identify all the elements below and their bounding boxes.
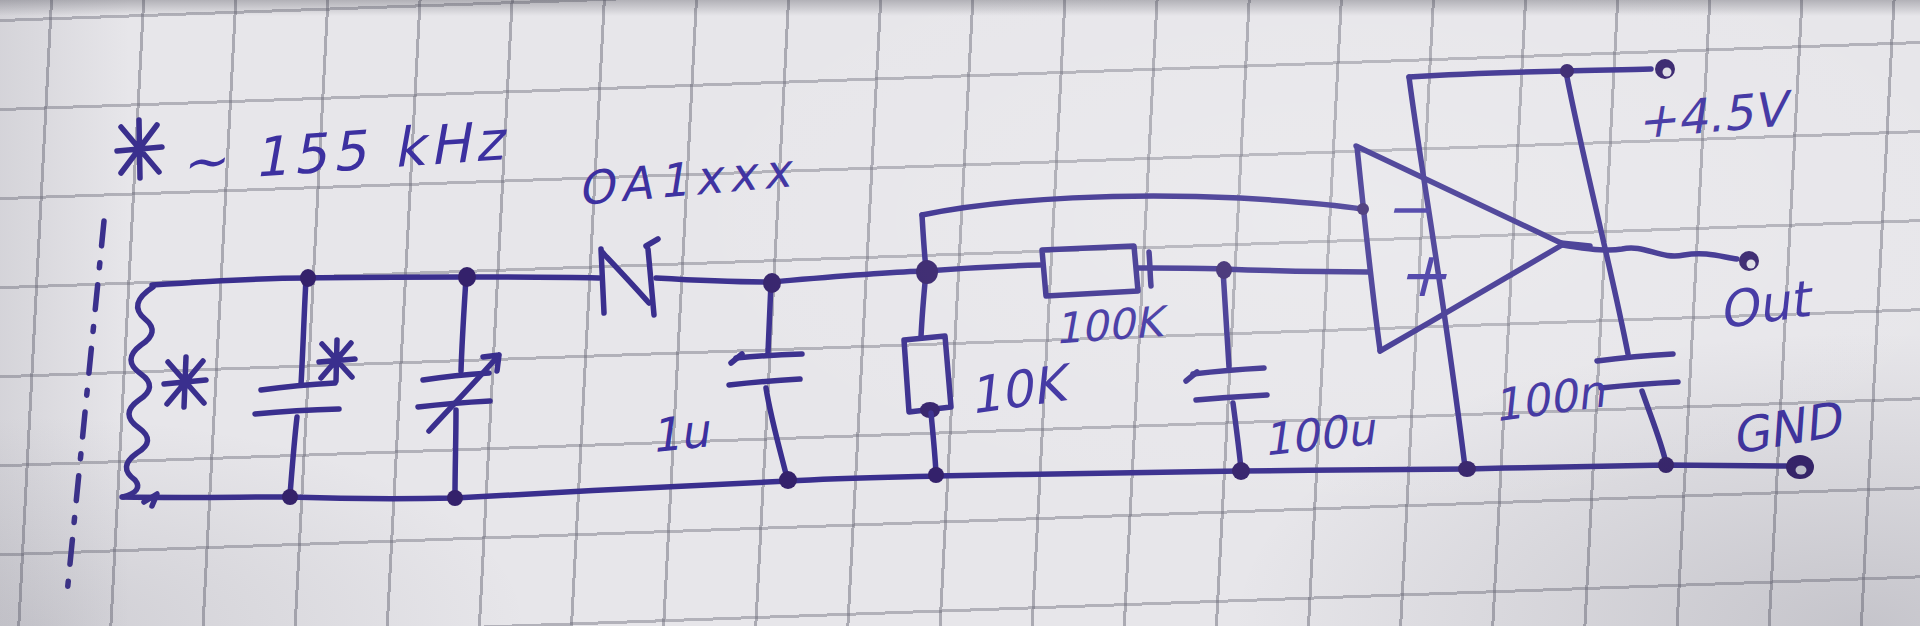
series-resistor-label: 100K xyxy=(1052,297,1170,354)
inverting-input-wire xyxy=(922,196,1362,269)
capacitor-note-asterisk xyxy=(319,340,355,381)
smoothing-capacitor xyxy=(1186,270,1267,469)
supply-rail-wire xyxy=(1409,69,1651,77)
supply-terminal xyxy=(1655,59,1675,79)
output-label: Out xyxy=(1714,269,1818,340)
inductor-coil xyxy=(123,287,153,497)
circuit-drawing: ~ 155 kHz OA1xxx 1u 10K 100K 100u 100n −… xyxy=(0,0,1920,626)
detector-filter-capacitor xyxy=(729,283,802,478)
filter-cap-label: 1u xyxy=(647,403,714,463)
load-resistor-label: 10K xyxy=(965,353,1078,425)
opamp-inverting-label: − xyxy=(1384,176,1431,241)
top-rail-wire xyxy=(152,265,1369,285)
load-resistor xyxy=(904,272,951,473)
bottom-rail-wire xyxy=(122,465,1786,506)
decoupling-cap-label: 100n xyxy=(1489,365,1609,431)
antenna-boundary-dashed-line xyxy=(67,221,104,594)
fixed-capacitor xyxy=(255,279,339,495)
output-wire xyxy=(1562,245,1737,259)
supply-label: +4.5V xyxy=(1634,80,1797,150)
smoothing-cap-label: 100u xyxy=(1260,403,1379,466)
diode-label: OA1xxx xyxy=(575,143,799,216)
series-resistor xyxy=(1042,246,1151,296)
output-terminal xyxy=(1739,251,1759,271)
variable-capacitor xyxy=(418,278,499,496)
ground-terminal xyxy=(1786,455,1814,479)
ground-label: GND xyxy=(1726,390,1848,465)
note-asterisk xyxy=(117,120,162,178)
coil-note-asterisk xyxy=(164,357,206,407)
schematic-photo: ~ 155 kHz OA1xxx 1u 10K 100K 100u 100n −… xyxy=(0,0,1920,626)
frequency-annotation: ~ 155 kHz xyxy=(178,109,510,195)
opamp-noninverting-label: + xyxy=(1396,238,1448,311)
detector-diode xyxy=(601,239,658,315)
